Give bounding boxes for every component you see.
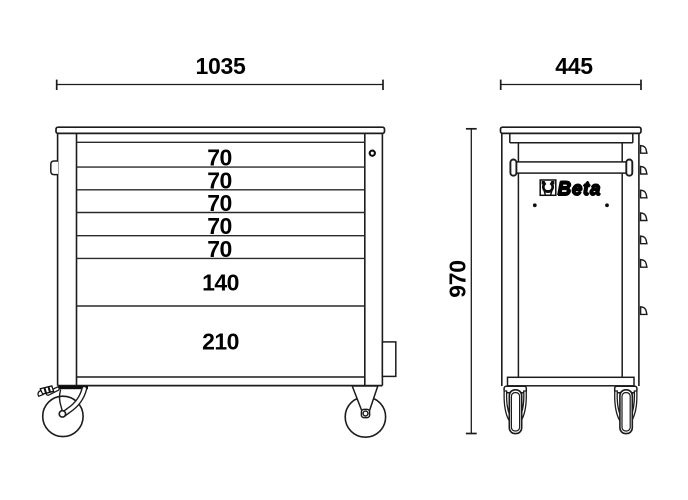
svg-text:445: 445 — [555, 53, 593, 79]
svg-text:70: 70 — [207, 236, 232, 262]
svg-text:70: 70 — [207, 190, 232, 216]
svg-text:140: 140 — [202, 270, 239, 296]
svg-text:1035: 1035 — [196, 53, 246, 79]
svg-text:210: 210 — [202, 329, 239, 355]
svg-text:Beta: Beta — [558, 179, 602, 200]
svg-text:970: 970 — [445, 260, 471, 297]
